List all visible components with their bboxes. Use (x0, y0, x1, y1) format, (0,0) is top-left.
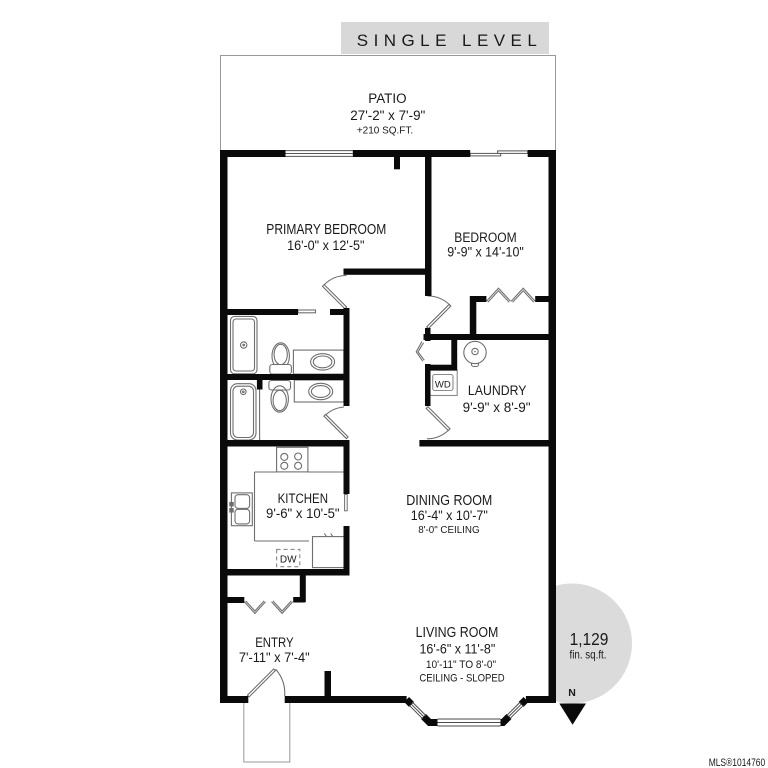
svg-text:KITCHEN: KITCHEN (278, 491, 328, 506)
svg-text:fin. sq.ft.: fin. sq.ft. (570, 648, 607, 662)
svg-text:16'-0" x 12'-5": 16'-0" x 12'-5" (287, 237, 364, 253)
svg-text:1,129: 1,129 (570, 629, 609, 649)
svg-text:+210 SQ.FT.: +210 SQ.FT. (357, 125, 413, 136)
svg-text:16'-4" x 10'-7": 16'-4" x 10'-7" (411, 507, 488, 523)
svg-text:MLS®1014760: MLS®1014760 (709, 757, 766, 768)
svg-text:PATIO: PATIO (368, 91, 406, 106)
svg-text:9'-6" x 10'-5": 9'-6" x 10'-5" (266, 506, 340, 521)
svg-text:9'-9" x 8'-9": 9'-9" x 8'-9" (463, 399, 531, 415)
svg-text:16'-6" x 11'-8": 16'-6" x 11'-8" (420, 640, 496, 656)
svg-text:8'-0" CEILING: 8'-0" CEILING (418, 524, 479, 536)
svg-text:LAUNDRY: LAUNDRY (468, 382, 527, 398)
svg-text:10'-11" TO 8'-0": 10'-11" TO 8'-0" (426, 659, 496, 671)
svg-text:WD: WD (435, 380, 451, 391)
svg-text:9'-9" x 14'-10": 9'-9" x 14'-10" (447, 243, 524, 259)
svg-text:27'-2" x 7'-9": 27'-2" x 7'-9" (350, 107, 425, 123)
svg-text:LIVING ROOM: LIVING ROOM (416, 625, 499, 641)
svg-text:DW: DW (280, 555, 297, 566)
svg-text:SINGLE LEVEL: SINGLE LEVEL (357, 31, 541, 50)
svg-text:CEILING - SLOPED: CEILING - SLOPED (419, 672, 504, 684)
svg-text:ENTRY: ENTRY (255, 634, 294, 650)
svg-text:7'-11" x 7'-4": 7'-11" x 7'-4" (239, 650, 310, 665)
svg-text:PRIMARY BEDROOM: PRIMARY BEDROOM (266, 222, 386, 238)
svg-text:N: N (568, 687, 576, 699)
